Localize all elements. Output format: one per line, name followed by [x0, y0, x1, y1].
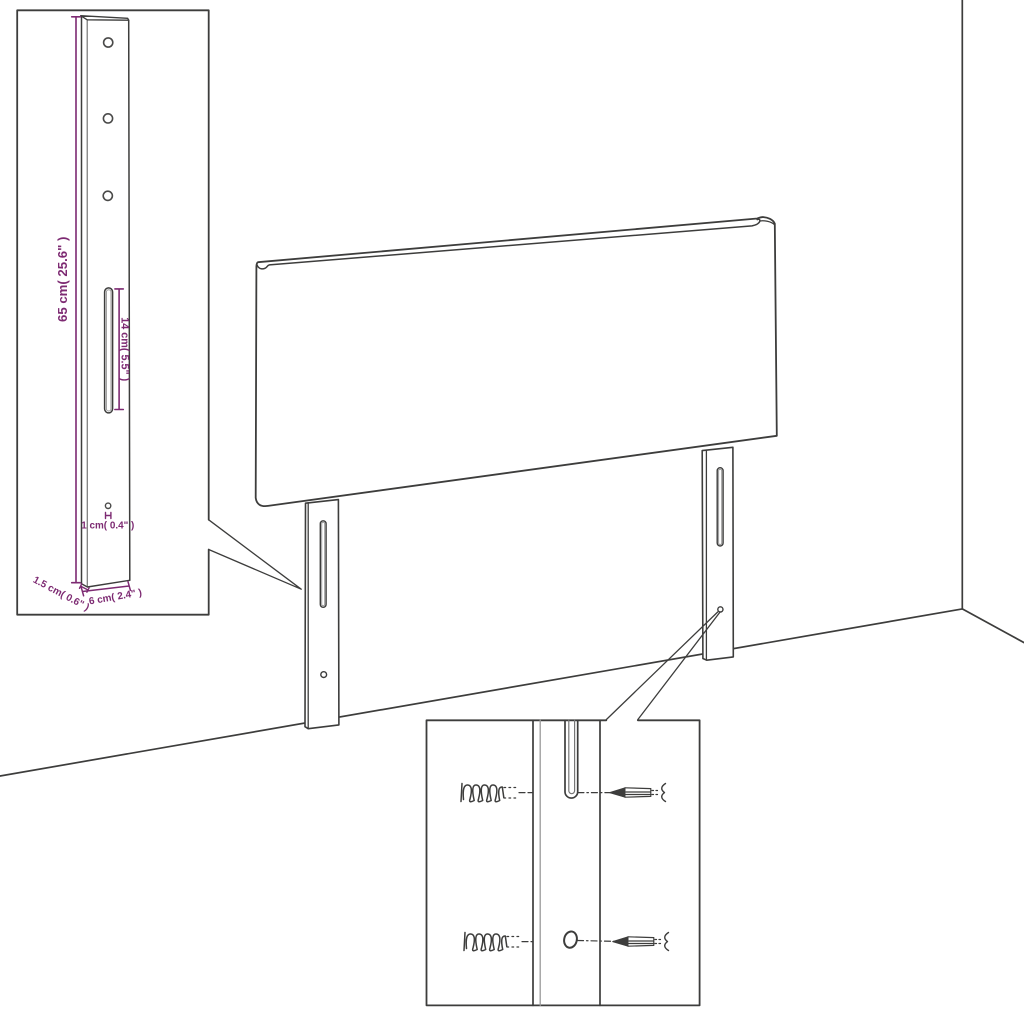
svg-text:14 cm( 5.5" ): 14 cm( 5.5" ) [119, 317, 131, 381]
svg-text:1 cm( 0.4" ): 1 cm( 0.4" ) [81, 521, 134, 532]
svg-text:65 cm( 25.6" ): 65 cm( 25.6" ) [55, 237, 70, 322]
